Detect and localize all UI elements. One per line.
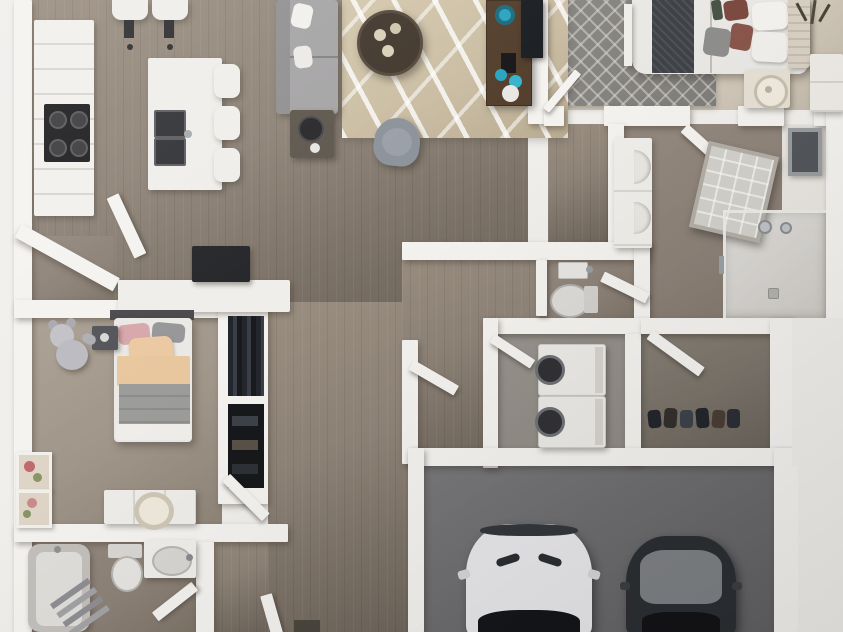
rolled-towel — [634, 202, 651, 234]
closet-cavity-hanging — [228, 316, 264, 396]
exterior-fill-right-mid — [792, 318, 843, 466]
teal-vase — [495, 69, 507, 81]
wall-garage-top — [408, 448, 794, 466]
burner — [49, 139, 67, 157]
linen-cabinet — [614, 138, 652, 248]
dried-plant — [796, 0, 836, 28]
walkin-closet-shelving — [788, 128, 822, 176]
teddy-body — [56, 340, 88, 370]
pillow-maroon — [723, 0, 750, 22]
wall-laundry-top — [483, 318, 643, 334]
wall-exterior-right-bath — [826, 106, 843, 324]
sofa-pillow — [293, 45, 314, 69]
coffee-table — [357, 10, 423, 76]
car-grille — [480, 524, 578, 536]
island-stool — [214, 148, 240, 182]
blanket-peach — [117, 356, 190, 386]
cooktop — [44, 104, 90, 162]
dryer — [538, 396, 606, 448]
foot-rail — [116, 424, 191, 440]
hanging-garment — [792, 132, 818, 172]
lamp-finial — [765, 86, 772, 93]
charcoal-throw — [652, 0, 694, 73]
duvet-gray — [119, 384, 190, 424]
shoe — [680, 410, 693, 428]
side-table — [290, 110, 334, 158]
powder-faucet — [586, 266, 593, 273]
wall-tv — [521, 0, 543, 58]
burner — [70, 111, 88, 129]
bed-bench — [624, 4, 632, 66]
shoe — [727, 409, 740, 428]
vanity2-faucet — [186, 554, 193, 561]
closet-cavity-shelves — [228, 404, 264, 488]
rolled-towel — [634, 150, 651, 184]
white-orb — [502, 85, 519, 102]
shoe-row — [648, 406, 740, 432]
shower-head — [758, 220, 772, 234]
shower-glass-top — [723, 210, 826, 213]
burner — [49, 111, 67, 129]
bar-stool — [152, 0, 188, 20]
island-stool — [214, 106, 240, 140]
island-sink-basin — [154, 138, 186, 166]
burner — [70, 139, 88, 157]
white-car — [466, 518, 592, 632]
chair-seat — [381, 127, 414, 158]
exterior-fill-garage-right — [798, 448, 843, 632]
island-stool — [214, 64, 240, 98]
table-decor — [310, 143, 320, 153]
shower-valve — [780, 222, 792, 234]
art-blob — [33, 473, 42, 482]
plant-stem — [818, 4, 831, 23]
wall-bathroom2-right — [196, 542, 214, 632]
powder-toilet-tank — [584, 286, 598, 313]
bathtub-faucet — [54, 546, 61, 553]
nightstand — [744, 70, 790, 108]
wall-corridor — [402, 340, 418, 464]
pillow-white — [751, 31, 789, 63]
folded-items — [232, 440, 258, 450]
shoe — [647, 409, 662, 428]
shoe — [695, 407, 710, 428]
door-mat — [294, 620, 320, 632]
plant-stem — [810, 0, 816, 24]
desk-monitor — [192, 246, 250, 282]
nightstand-lamp — [754, 75, 788, 109]
folded-items — [232, 416, 258, 426]
shoe — [711, 409, 726, 428]
shower-drain — [768, 288, 779, 299]
side-mirror — [732, 582, 742, 590]
teddy-bear — [44, 316, 96, 376]
washer-door — [535, 355, 565, 385]
dryer-door — [535, 407, 565, 437]
dresser-lamp — [134, 492, 174, 530]
powder-sink — [558, 262, 588, 279]
bar-stool-leg — [164, 20, 174, 38]
coffee-table-decor — [382, 45, 394, 57]
dark-car — [626, 536, 736, 632]
coffee-table-decor — [390, 23, 401, 34]
washer — [538, 344, 606, 396]
wall-bedroom-south-3 — [738, 106, 784, 126]
bedroom2-dresser — [104, 490, 196, 524]
vanity2 — [144, 540, 196, 578]
art-blob — [27, 498, 37, 508]
pillow-white — [751, 1, 789, 31]
floor-hallway — [268, 302, 408, 632]
toilet2-bowl — [111, 556, 143, 592]
car-hood — [640, 550, 722, 604]
wall-laundry-right — [625, 334, 641, 464]
floor-plan-render: 3D top-down floor plan render of a two-b… — [0, 0, 843, 632]
shower-door-handle — [719, 256, 724, 274]
side-mirror — [620, 582, 630, 590]
floor-bedroom-hall — [548, 124, 608, 242]
wall-garage-right — [774, 448, 798, 632]
car-windshield — [642, 612, 720, 632]
vanity2-basin — [152, 546, 192, 576]
bedroom2-bed — [114, 318, 192, 442]
island-sink-basin — [154, 110, 186, 138]
sofa-back — [276, 0, 290, 114]
shoe — [663, 408, 677, 429]
wall-art-frame — [16, 452, 52, 492]
desk — [118, 280, 290, 312]
wall-bedroom-south-2 — [604, 106, 690, 126]
wall-art-frame — [16, 490, 52, 528]
door-powder-room — [536, 260, 547, 316]
art-blob — [23, 510, 31, 518]
kitchen-island — [148, 58, 222, 190]
nightstand-decor — [100, 333, 109, 342]
bar-stool-foot — [167, 44, 173, 50]
table-lamp — [298, 116, 324, 142]
master-dresser — [810, 54, 843, 112]
sofa-pillow — [290, 2, 315, 30]
coffee-table-decor — [374, 29, 386, 41]
teal-bowl — [495, 5, 515, 25]
sectional-sofa — [276, 0, 338, 114]
dryer-panel — [595, 399, 603, 445]
island-faucet — [184, 130, 192, 138]
wall-hall-garage-divider — [408, 448, 424, 632]
wall-hall-south — [402, 242, 650, 260]
bar-stool — [112, 0, 148, 20]
wall-shoecloset-right — [770, 318, 792, 464]
plant-stem — [795, 2, 807, 21]
bar-stool-foot — [127, 44, 133, 50]
bar-stool-leg — [124, 20, 134, 38]
pillow-maroon — [728, 22, 754, 51]
folded-items — [232, 464, 258, 474]
car-windshield — [478, 610, 580, 632]
washer-panel — [595, 347, 603, 393]
art-blob — [24, 461, 35, 472]
pillow-gray-knit — [702, 26, 732, 57]
